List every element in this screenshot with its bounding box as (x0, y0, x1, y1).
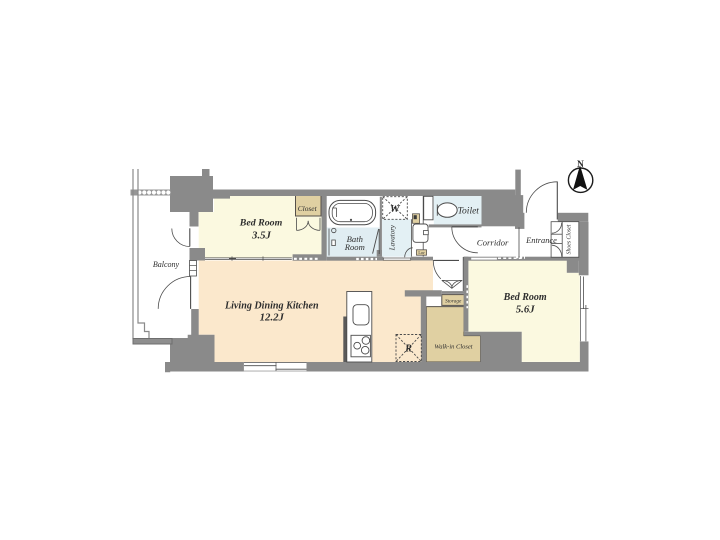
svg-text:5.6J: 5.6J (516, 304, 535, 316)
svg-text:Shoes Closet: Shoes Closet (567, 224, 573, 254)
svg-text:Walk-in Closet: Walk-in Closet (434, 344, 472, 351)
svg-text:Lav: Lav (418, 250, 424, 255)
svg-text:N: N (577, 160, 584, 170)
svg-text:Storage: Storage (445, 298, 462, 304)
svg-text:W: W (390, 203, 401, 215)
svg-text:Balcony: Balcony (153, 260, 180, 269)
svg-text:Bed Room: Bed Room (503, 292, 547, 303)
svg-text:Lavatory: Lavatory (389, 224, 397, 251)
svg-text:Corridor: Corridor (477, 238, 509, 248)
svg-text:Toilet: Toilet (458, 207, 480, 217)
svg-text:Living Dining Kitchen: Living Dining Kitchen (224, 301, 319, 312)
svg-text:R: R (404, 344, 412, 355)
svg-text:Closet: Closet (298, 204, 318, 213)
svg-text:Bed Room: Bed Room (239, 217, 283, 228)
svg-text:Room: Room (344, 242, 365, 252)
svg-text:12.2J: 12.2J (260, 312, 285, 324)
svg-text:Entrance: Entrance (525, 236, 557, 245)
svg-text:3.5J: 3.5J (251, 230, 271, 242)
